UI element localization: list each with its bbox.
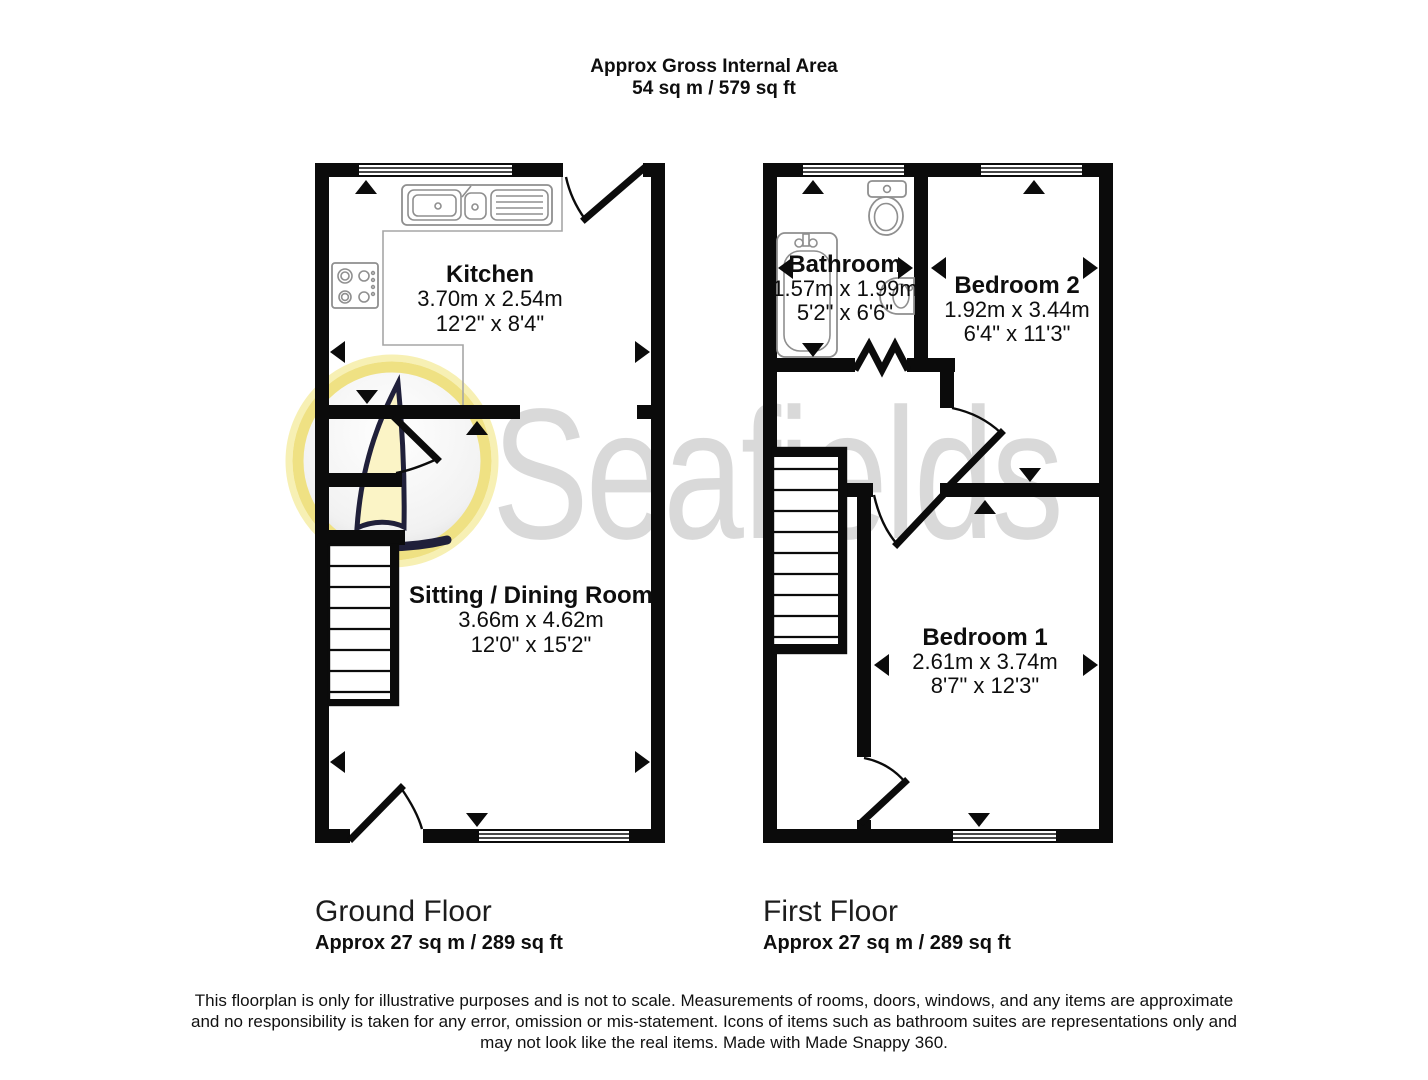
- bedroom1-name: Bedroom 1: [922, 624, 1047, 651]
- bedroom1-label: Bedroom 1 2.61m x 3.74m 8'7" x 12'3": [912, 624, 1058, 698]
- floor-captions: Ground Floor Approx 27 sq m / 289 sq ft …: [315, 895, 1011, 954]
- first-stairs: [773, 448, 846, 653]
- bathroom-imperial: 5'2" x 6'6": [797, 300, 893, 325]
- disclaimer: This floorplan is only for illustrative …: [191, 991, 1237, 1052]
- bedroom2-imperial: 6'4" x 11'3": [964, 321, 1071, 346]
- ground-stairs: [329, 545, 398, 705]
- kitchen-imperial: 12'2" x 8'4": [436, 311, 544, 336]
- front-door: [352, 788, 422, 838]
- kitchen-sink-icon: [402, 185, 552, 225]
- bedroom1-window: [952, 830, 1057, 842]
- bedroom2-window: [980, 164, 1083, 176]
- ground-floor-caption: Ground Floor: [315, 895, 492, 928]
- disclaimer-line-2: and no responsibility is taken for any e…: [191, 1012, 1237, 1031]
- kitchen-metric: 3.70m x 2.54m: [417, 286, 563, 311]
- bathroom-name: Bathroom: [788, 251, 901, 278]
- floorplan-page: Seafields Approx Gross Internal Area 54 …: [0, 0, 1428, 1080]
- gross-area-title: Approx Gross Internal Area: [590, 56, 838, 77]
- first-floor-area: Approx 27 sq m / 289 sq ft: [763, 932, 1011, 954]
- kitchen-window: [358, 164, 513, 176]
- gross-area-value: 54 sq m / 579 sq ft: [632, 78, 796, 99]
- kitchen-door: [566, 169, 643, 219]
- kitchen-label: Kitchen 3.70m x 2.54m 12'2" x 8'4": [417, 261, 563, 336]
- bathroom-bifold-door: [855, 345, 908, 370]
- toilet-icon: [868, 181, 906, 235]
- ground-floor-area: Approx 27 sq m / 289 sq ft: [315, 932, 563, 954]
- bedroom1-door: [863, 758, 905, 821]
- bedroom2-name: Bedroom 2: [954, 272, 1079, 299]
- floorplan-canvas: Seafields Approx Gross Internal Area 54 …: [0, 0, 1428, 1080]
- sitting-metric: 3.66m x 4.62m: [458, 607, 604, 632]
- disclaimer-line-1: This floorplan is only for illustrative …: [195, 991, 1233, 1010]
- sitting-name: Sitting / Dining Room: [409, 582, 653, 609]
- sitting-room-window: [478, 830, 630, 842]
- sitting-room-label: Sitting / Dining Room 3.66m x 4.62m 12'0…: [409, 582, 653, 657]
- sitting-imperial: 12'0" x 15'2": [471, 632, 592, 657]
- bathroom-metric: 1.57m x 1.99m: [772, 276, 918, 301]
- bedroom1-metric: 2.61m x 3.74m: [912, 649, 1058, 674]
- bedroom1-imperial: 8'7" x 12'3": [931, 673, 1039, 698]
- first-floor-caption: First Floor: [763, 895, 898, 928]
- bedroom2-label: Bedroom 2 1.92m x 3.44m 6'4" x 11'3": [944, 272, 1090, 346]
- bedroom2-metric: 1.92m x 3.44m: [944, 297, 1090, 322]
- bathroom-window: [802, 164, 905, 176]
- kitchen-hob-icon: [332, 263, 378, 308]
- header: Approx Gross Internal Area 54 sq m / 579…: [590, 56, 838, 99]
- disclaimer-line-3: may not look like the real items. Made w…: [480, 1033, 948, 1052]
- kitchen-name: Kitchen: [446, 261, 534, 288]
